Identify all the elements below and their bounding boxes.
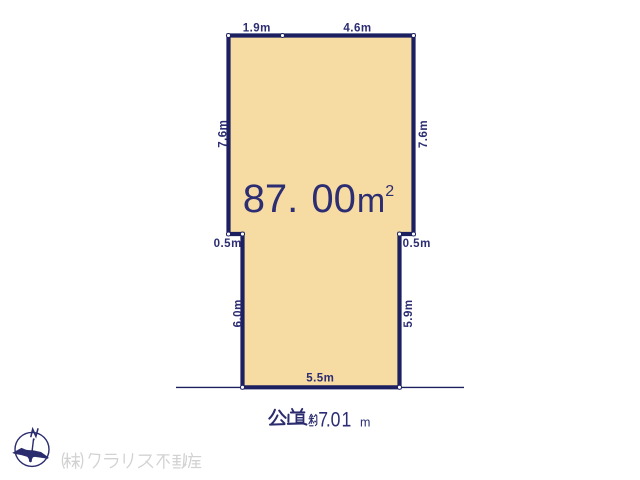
svg-text:6.0m: 6.0m <box>233 299 245 327</box>
svg-text:5.9m: 5.9m <box>403 299 415 327</box>
svg-text:1: 1 <box>342 408 352 432</box>
svg-text:4.6m: 4.6m <box>343 22 371 34</box>
svg-text:87. 00m2: 87. 00m2 <box>243 177 395 221</box>
svg-text:1.9m: 1.9m <box>243 22 271 34</box>
svg-text:0.5m: 0.5m <box>214 238 242 250</box>
svg-text:7.6m: 7.6m <box>418 120 430 148</box>
svg-text:m: m <box>360 415 370 429</box>
svg-text:5.5m: 5.5m <box>306 373 334 385</box>
svg-text:0.5m: 0.5m <box>403 238 431 250</box>
svg-text:0: 0 <box>331 408 341 432</box>
svg-text:7.6m: 7.6m <box>217 120 229 148</box>
